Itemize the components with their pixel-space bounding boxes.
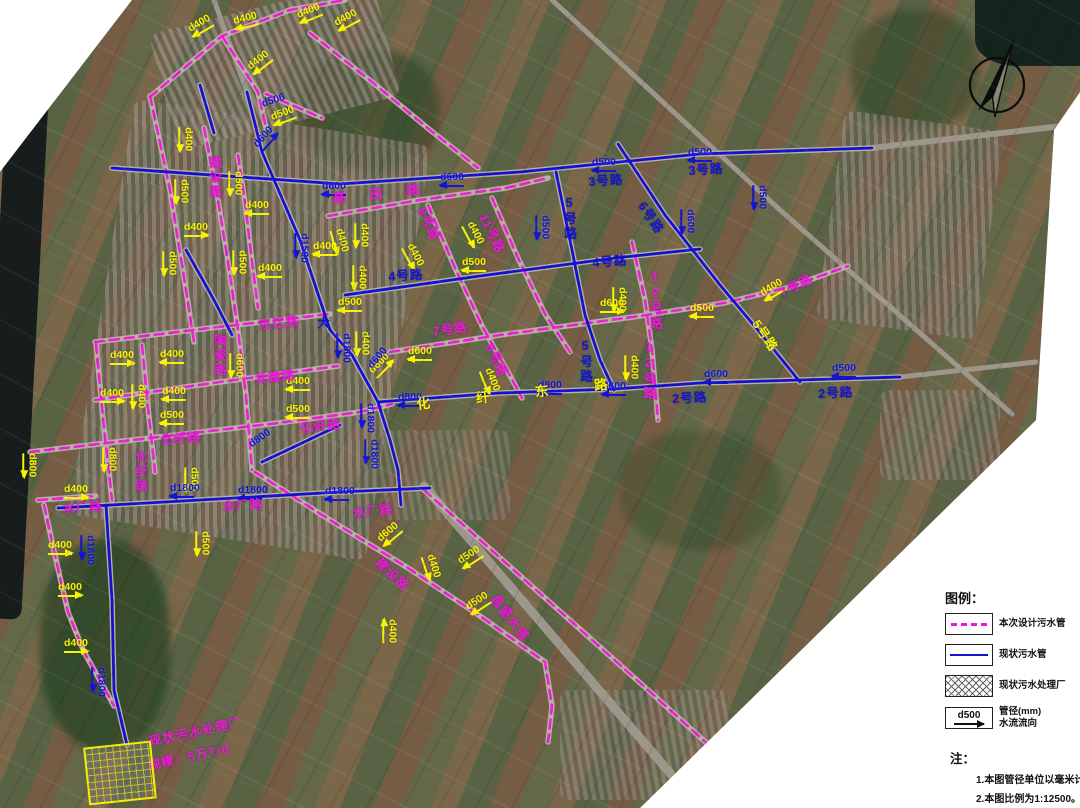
flow-arrow-icon <box>383 530 403 547</box>
flow-arrow-icon <box>170 496 194 498</box>
pipe-diameter-label: d400 <box>160 349 184 364</box>
road-name-label: 6号路 <box>635 200 665 236</box>
flow-arrow-icon <box>463 555 484 570</box>
flow-arrow-icon <box>681 209 683 233</box>
road-underlay <box>95 314 330 342</box>
flow-arrow-icon <box>421 557 430 580</box>
designed-sewage-pipe <box>266 94 322 118</box>
flow-arrow-icon <box>365 439 367 463</box>
road-name-label: 8号路 <box>414 206 441 243</box>
pipe-diameter-label: d500 <box>175 179 190 203</box>
pipe-diameter-label: d500 <box>163 251 178 275</box>
flow-arrow-icon <box>383 619 385 643</box>
existing-pipe-swatch <box>945 644 993 666</box>
designed-sewage-pipe <box>222 36 266 128</box>
pipe-diameter-label: d600 <box>704 369 728 384</box>
road-name-label: 2号路 <box>818 386 854 401</box>
base-road <box>900 362 1036 377</box>
satellite-imagery: d400d400d400d400d400d400d500d500d500d400… <box>0 0 1080 808</box>
treatment-plant-swatch <box>945 675 993 697</box>
road-underlay <box>255 472 552 742</box>
designed-sewage-pipe <box>30 404 392 452</box>
map-page: d400d400d400d400d400d400d500d500d500d400… <box>0 0 1080 808</box>
pipe-diameter-label: d400 <box>286 376 310 391</box>
pipe-diameter-label: d600 <box>367 351 394 378</box>
flow-arrow-icon <box>356 331 358 355</box>
pipe-diameter-label: d600 <box>602 381 626 396</box>
pipe-diameter-label: d600 <box>322 181 346 196</box>
designed-sewage-pipe <box>424 490 748 790</box>
flow-arrow-icon <box>238 498 262 500</box>
road-underlay <box>96 344 112 500</box>
pipe-diameter-label: d400 <box>295 2 323 24</box>
pipe-diameter-label: d500 <box>260 92 286 109</box>
flow-arrow-icon <box>753 185 755 209</box>
pipe-diameter-label: d600 <box>375 520 403 547</box>
designed-sewage-pipe <box>204 128 252 470</box>
pipe-diameter-label: d500 <box>464 590 492 615</box>
pipe-diameter-label: d1800 <box>365 439 380 469</box>
road-underlay <box>492 198 570 352</box>
pipe-diameter-label: d800 <box>247 427 273 449</box>
pipe-diameter-label: d400 <box>383 619 398 643</box>
pipe-diameter-label: d400 <box>421 553 442 580</box>
flow-arrow-icon <box>353 265 355 289</box>
road-name-label: 8号路 <box>482 342 509 379</box>
flow-arrow-icon <box>132 384 134 408</box>
flow-arrow-icon <box>313 254 337 256</box>
designed-sewage-pipe <box>38 496 96 500</box>
road-underlay <box>150 96 194 342</box>
flow-arrow-icon <box>338 310 362 312</box>
existing-sewage-pipe <box>378 377 900 402</box>
pipe-diameter-label: d500 <box>286 404 310 419</box>
legend-item-designed-pipe: 本次设计污水管 <box>945 613 1078 635</box>
flow-arrow-icon <box>100 401 124 403</box>
flow-arrow-icon <box>253 59 273 75</box>
road-underlay <box>262 425 340 462</box>
road-name-label: 12号路 <box>641 340 654 401</box>
flow-arrow-icon <box>325 499 349 501</box>
flow-arrow-icon <box>160 362 184 364</box>
flow-arrow-icon <box>462 270 486 272</box>
flow-arrow-icon <box>402 248 415 270</box>
pipe-diameter-label: d400 <box>313 241 337 256</box>
flow-arrow-icon <box>179 127 181 151</box>
road-name-label: 3号路 <box>588 174 624 190</box>
pipe-diameter-label: d1800 <box>361 403 376 433</box>
existing-sewage-pipe <box>556 172 614 390</box>
pipe-diameter-label: d1500 <box>295 233 310 263</box>
flow-arrow-icon <box>625 355 627 379</box>
flow-arrow-icon <box>286 417 310 419</box>
pipe-diameter-label: d400 <box>179 127 194 151</box>
flow-arrow-icon <box>162 399 186 401</box>
flow-arrow-icon <box>361 403 363 427</box>
flow-arrow-icon <box>193 24 215 38</box>
pipe-diameter-label: d400 <box>64 638 88 653</box>
legend-item-existing-pipe: 现状污水管 <box>945 644 1078 666</box>
flow-arrow-icon <box>954 723 984 725</box>
pipe-diameter-label: d500 <box>462 257 486 272</box>
road-name-label: 4号路 <box>388 269 424 285</box>
pipe-diameter-label: d1800 <box>170 483 200 498</box>
note-line: 1.本图管径单位以毫米计。 <box>976 771 1080 786</box>
pipe-diameter-label: d1800 <box>81 535 96 565</box>
pipe-diameter-label: d400 <box>353 265 368 289</box>
legend-item-treatment-plant: 现状污水处理厂 <box>945 675 1078 697</box>
designed-pipe-swatch <box>945 613 993 635</box>
flow-arrow-icon <box>261 133 279 152</box>
pipe-diameter-label: d400 <box>330 227 350 254</box>
road-underlay <box>424 490 748 790</box>
flow-arrow-icon <box>322 194 346 196</box>
road-name-label: 化纤路 <box>300 418 342 436</box>
pipe-diameter-label: d400 <box>162 386 186 401</box>
designed-sewage-pipe <box>95 366 338 400</box>
road-underlay <box>556 172 614 390</box>
road-underlay <box>328 178 548 216</box>
road-underlay <box>222 36 266 128</box>
pipe-diameter-label: d400 <box>402 242 426 270</box>
road-name-label: 5号路 <box>562 196 575 241</box>
pipe-diameter-label: d800 <box>23 453 38 477</box>
road-name-label: 共建路 <box>254 369 296 387</box>
pipe-diameter-label: d400 <box>258 263 282 278</box>
pipe-diameter-label: d500 <box>229 171 244 195</box>
flow-arrow-icon <box>330 231 338 255</box>
pipe-diameter-label: d400 <box>184 222 208 237</box>
road-name-label: 汉江路 <box>258 315 300 333</box>
flow-arrow-icon <box>92 667 94 691</box>
existing-sewage-pipe <box>345 249 700 295</box>
flow-arrow-icon <box>338 19 360 32</box>
flow-arrow-icon <box>462 226 475 248</box>
legend: 图例： 本次设计污水管 现状污水管 现状污水处理厂 d500 管径(mm) 水流… <box>945 588 1078 739</box>
pipe-diameter-label: d500 <box>456 544 484 569</box>
road-underlay <box>310 33 478 168</box>
pipe-diameter-label: d400 <box>132 384 147 408</box>
urban-area-village <box>880 390 1000 480</box>
road-underlay <box>200 85 214 133</box>
road-name-label: 建设路 <box>207 156 220 200</box>
road-underlay <box>186 250 232 335</box>
pipe-diameter-label: d400 <box>58 582 82 597</box>
road-name-label: 11号路 <box>476 212 506 256</box>
flow-arrow-icon <box>538 393 562 395</box>
flow-arrow-icon <box>196 531 198 555</box>
road-name-label: 水厂路 <box>62 500 103 516</box>
flow-arrow-icon <box>688 160 712 162</box>
pipe-diameter-label: d500 <box>185 467 200 491</box>
designed-sewage-pipe <box>96 344 112 500</box>
flow-arrow-icon <box>233 250 235 274</box>
flow-arrow-icon <box>175 179 177 203</box>
pipe-diameter-label: d600 <box>366 346 389 371</box>
road-name-label: 5号路 <box>578 339 591 384</box>
designed-sewage-pipe <box>150 0 345 97</box>
designed-sewage-pipe <box>238 155 258 308</box>
road-underlay <box>632 242 658 420</box>
pipe-diameter-label: d400 <box>232 10 259 30</box>
pipe-diameter-label: d400 <box>462 220 486 248</box>
legend-heading: 图例： <box>945 588 1078 607</box>
road-underlay <box>106 505 127 745</box>
road-name-label: 大 <box>315 316 328 331</box>
pipe-diameter-label: d500 <box>688 147 712 162</box>
pipe-diameter-label: d500 <box>690 303 714 318</box>
road-name-label: 陶瓷路 <box>212 334 225 378</box>
pipe-diameter-label: d1800 <box>325 486 355 501</box>
pipe-diameter-label: d500 <box>270 104 298 126</box>
flow-arrow-icon <box>58 595 82 597</box>
pipe-diameter-label: d400 <box>48 540 72 555</box>
existing-sewage-pipe <box>58 488 430 508</box>
pipe-network-layer <box>0 0 1080 808</box>
pipe-diameter-label: d600 <box>230 353 245 377</box>
road-underlay <box>238 155 258 308</box>
flow-arrow-icon <box>355 223 357 247</box>
existing-sewage-pipe <box>247 92 401 505</box>
road-name-label: 7号路 <box>432 321 468 339</box>
pipe-diameter-label: d400 <box>625 355 640 379</box>
road-name-label: 3号路 <box>688 163 724 179</box>
flow-arrow-icon <box>704 382 728 384</box>
flow-arrow-icon <box>337 333 339 357</box>
road-underlay <box>112 148 872 184</box>
designed-sewage-pipe <box>428 205 522 398</box>
forest-patch <box>40 540 170 750</box>
existing-sewage-pipe <box>186 250 232 335</box>
pipe-diameter-label: d400 <box>479 367 501 395</box>
pipe-diameter-label: d500 <box>753 185 768 209</box>
flow-arrow-icon <box>376 360 394 378</box>
urban-area-factory <box>816 110 1004 340</box>
base-road <box>424 486 700 808</box>
flow-arrow-icon <box>295 233 297 257</box>
north-arrow-icon <box>952 30 1042 126</box>
flow-arrow-icon <box>471 601 492 616</box>
flow-arrow-icon <box>64 651 88 653</box>
pipe-diameter-label: d400 <box>64 484 88 499</box>
road-underlay <box>58 488 430 508</box>
pipe-diameter-label: d600 <box>252 125 279 153</box>
pipe-diameter-label: d500 <box>338 297 362 312</box>
pipe-diameter-label: d1800 <box>238 485 268 500</box>
flow-arrow-icon <box>160 423 184 425</box>
legend-item-diameter-flow: d500 管径(mm) 水流流向 <box>945 706 1078 730</box>
road-underlay <box>428 205 522 398</box>
treatment-plant-label: 现状污水处理厂 <box>148 716 243 748</box>
flow-arrow-icon <box>592 170 616 172</box>
flow-arrow-icon <box>600 311 624 313</box>
pipe-diameter-label: d1800 <box>92 667 107 697</box>
road-name-label: 5号路 <box>749 318 779 354</box>
treatment-plant-label: 规模：5万T/d <box>147 743 232 773</box>
urban-area-village <box>380 430 510 520</box>
urban-area-village <box>560 690 730 800</box>
existing-sewage-pipe <box>106 505 127 745</box>
pipe-diameter-label: d400 <box>110 350 134 365</box>
pipe-diameter-label: d600 <box>440 172 464 187</box>
flow-arrow-icon <box>602 394 626 396</box>
pipe-diameter-label: d400 <box>100 388 124 403</box>
flow-arrow-icon <box>230 353 232 377</box>
designed-sewage-pipe <box>150 96 194 342</box>
road-name-label: 水厂路 <box>222 498 263 514</box>
road-underlay <box>142 345 155 472</box>
road-name-label: 高田路 <box>332 180 444 205</box>
road-underlay <box>30 404 392 452</box>
urban-area-village <box>149 0 401 151</box>
road-underlay <box>618 144 800 382</box>
road-name-label: 建设路 <box>373 556 411 594</box>
flow-arrow-icon <box>110 363 134 365</box>
forest-patch <box>620 430 780 550</box>
flow-arrow-icon <box>185 467 187 491</box>
flow-arrow-icon <box>274 116 297 126</box>
existing-sewage-pipe <box>262 425 340 462</box>
road-underlay <box>150 0 345 97</box>
flow-arrow-icon <box>690 316 714 318</box>
flow-arrow-icon <box>398 405 422 407</box>
road-name-label: 2号路 <box>672 391 708 406</box>
pipe-diameter-label: d600 <box>681 209 696 233</box>
flow-arrow-icon <box>440 185 464 187</box>
existing-sewage-pipe <box>112 148 872 184</box>
pipe-diameter-label: d400 <box>758 277 786 302</box>
flow-arrow-icon <box>81 535 83 559</box>
pipe-diameter-label: d500 <box>233 250 248 274</box>
flow-arrow-icon <box>245 213 269 215</box>
map-notes: 注： 1.本图管径单位以毫米计。 2.本图比例为1:12500。 <box>950 748 1080 805</box>
designed-sewage-pipe <box>255 472 552 742</box>
flow-arrow-icon <box>229 171 231 195</box>
pipe-diameter-label: d500 <box>832 363 856 378</box>
flow-arrow-icon <box>832 376 856 378</box>
road-underlay <box>44 505 114 706</box>
pipe-diameter-label: d600 <box>600 298 624 313</box>
pipe-diameter-label: d800 <box>398 392 422 407</box>
pipe-diameter-label: d500 <box>536 215 551 239</box>
road-underlay <box>38 496 96 500</box>
urban-area-old-town <box>69 99 431 561</box>
flow-arrow-icon <box>300 13 323 24</box>
road-underlay <box>95 366 338 400</box>
base-road <box>214 0 247 92</box>
existing-sewage-pipe <box>200 85 214 133</box>
pipe-diameter-label: d600 <box>408 346 432 361</box>
road-underlay <box>390 266 848 352</box>
road-name-label: 化纤路 <box>133 450 146 494</box>
road-underlay <box>378 377 900 402</box>
flow-arrow-icon <box>48 553 72 555</box>
pipe-diameter-label: d500 <box>196 531 211 555</box>
designed-sewage-pipe <box>310 33 478 168</box>
road-name-label: 昌盛大道 <box>488 593 532 644</box>
designed-sewage-pipe <box>632 242 658 420</box>
flow-arrow-icon <box>23 453 25 477</box>
flow-arrow-icon <box>103 447 105 471</box>
road-name-label: 4号路 <box>592 255 628 271</box>
designed-sewage-pipe <box>492 198 570 352</box>
road-name-label: 化纤路 <box>160 431 201 447</box>
flow-arrow-icon <box>64 497 88 499</box>
road-underlay <box>345 249 700 295</box>
forest-patch <box>850 10 980 130</box>
pipe-diameter-label: d400 <box>355 223 370 247</box>
existing-sewage-pipe <box>618 144 800 382</box>
road-name-label: 7号路 <box>778 273 815 300</box>
base-road <box>872 126 1062 148</box>
designed-sewage-pipe <box>390 266 848 352</box>
road-name-label: 12号路 <box>648 270 661 331</box>
road-underlay <box>247 92 401 505</box>
flow-arrow-icon <box>408 359 432 361</box>
pipe-diameter-label: d800 <box>103 447 118 471</box>
pipe-diameter-label: d400 <box>246 49 274 75</box>
flow-arrow-icon <box>235 23 259 31</box>
road-name-label: 化纤东路 <box>416 373 654 412</box>
diameter-flow-swatch: d500 <box>945 707 993 729</box>
designed-sewage-pipe <box>95 314 330 342</box>
designed-sewage-pipe <box>142 345 155 472</box>
note-line: 2.本图比例为1:12500。 <box>976 790 1080 805</box>
pipe-diameter-label: d1800 <box>337 333 352 363</box>
flow-arrow-icon <box>536 215 538 239</box>
sewage-treatment-plant <box>83 741 157 806</box>
pond-water <box>975 0 1080 66</box>
pipe-diameter-label: d400 <box>333 8 361 32</box>
pipe-diameter-label: d500 <box>160 410 184 425</box>
designed-sewage-pipe <box>44 505 114 706</box>
flow-arrow-icon <box>184 235 208 237</box>
pipe-diameter-label: d800 <box>538 380 562 395</box>
flow-arrow-icon <box>286 389 310 391</box>
road-name-label: 水厂路 <box>352 503 394 521</box>
forest-patch <box>300 50 440 170</box>
pipe-diameter-label: d500 <box>592 157 616 172</box>
base-road <box>552 0 1012 414</box>
flow-arrow-icon <box>613 287 615 311</box>
pipe-diameter-label: d400 <box>356 331 371 355</box>
pipe-diameter-label: d400 <box>245 200 269 215</box>
river-water <box>0 53 51 619</box>
flow-arrow-icon <box>163 251 165 275</box>
flow-arrow-icon <box>479 371 490 394</box>
designed-sewage-pipe <box>328 178 548 216</box>
flow-arrow-icon <box>765 288 787 302</box>
flow-arrow-icon <box>258 276 282 278</box>
pipe-diameter-label: d400 <box>613 287 628 311</box>
notes-heading: 注： <box>950 748 1080 767</box>
road-underlay <box>204 128 252 470</box>
road-underlay <box>266 94 322 118</box>
pipe-diameter-label: d400 <box>186 13 214 38</box>
